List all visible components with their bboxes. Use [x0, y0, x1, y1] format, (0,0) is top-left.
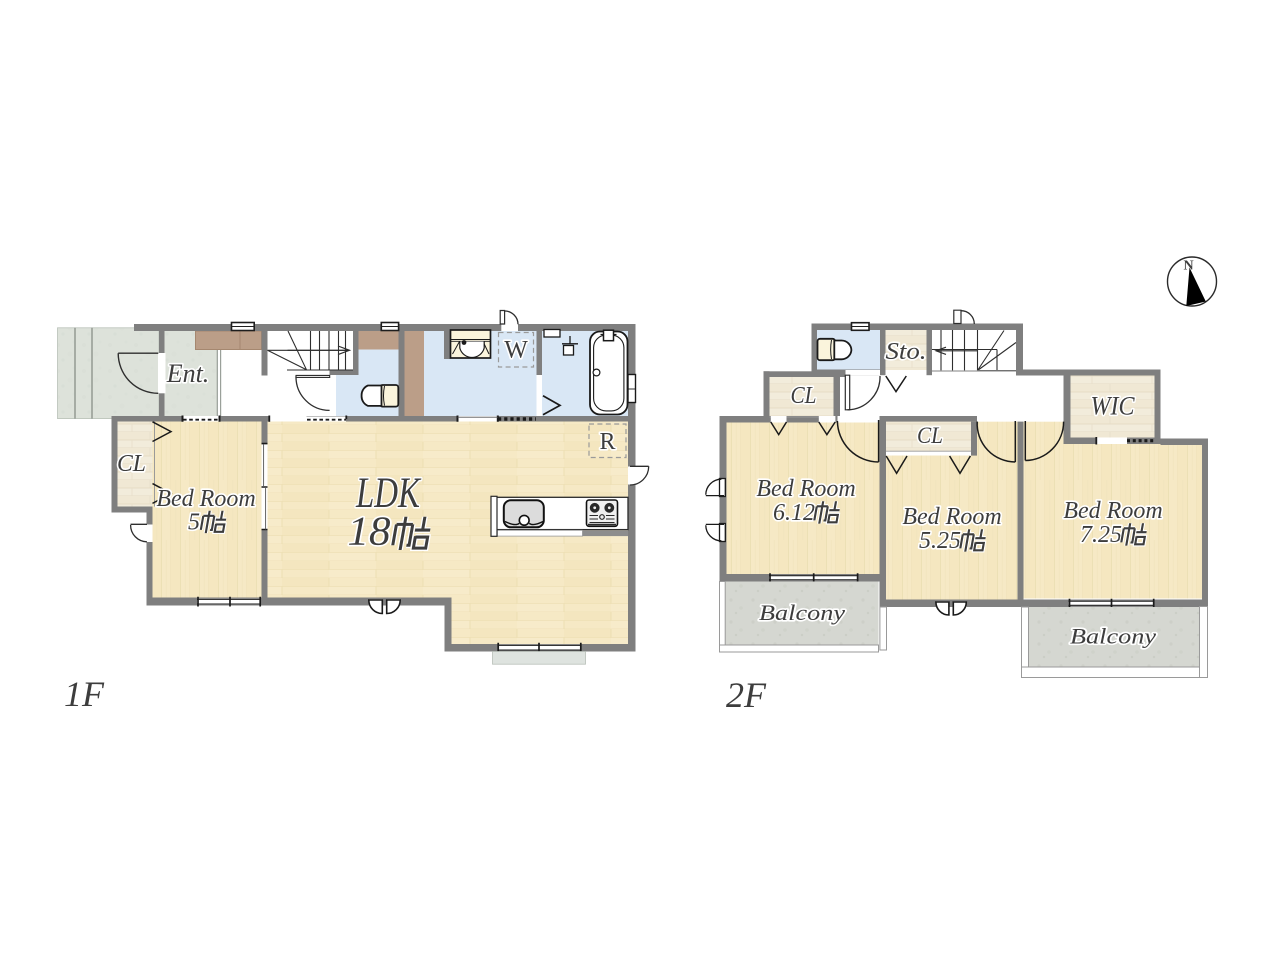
svg-text:Bed Room: Bed Room — [756, 476, 855, 502]
svg-text:2F: 2F — [726, 675, 767, 715]
svg-text:Bed Room: Bed Room — [1063, 498, 1162, 524]
svg-text:7.25: 7.25 — [1080, 522, 1122, 548]
svg-text:Bed Room: Bed Room — [902, 504, 1001, 530]
svg-text:Sto.: Sto. — [886, 339, 927, 365]
svg-text:18: 18 — [348, 508, 392, 554]
svg-text:1F: 1F — [64, 674, 105, 714]
svg-text:Ent.: Ent. — [166, 359, 210, 388]
svg-text:Balcony: Balcony — [759, 600, 845, 625]
svg-text:5.25: 5.25 — [919, 528, 961, 554]
svg-text:W: W — [504, 337, 528, 364]
svg-text:N: N — [1183, 259, 1193, 274]
svg-text:CL: CL — [917, 423, 943, 448]
svg-text:WIC: WIC — [1091, 392, 1136, 421]
svg-text:CL: CL — [791, 383, 817, 409]
svg-text:Balcony: Balcony — [1070, 624, 1156, 649]
svg-text:Bed Room: Bed Room — [156, 486, 255, 512]
svg-text:5: 5 — [188, 510, 200, 536]
svg-text:R: R — [599, 429, 615, 455]
svg-text:6.12: 6.12 — [773, 500, 815, 526]
svg-text:CL: CL — [117, 451, 146, 477]
